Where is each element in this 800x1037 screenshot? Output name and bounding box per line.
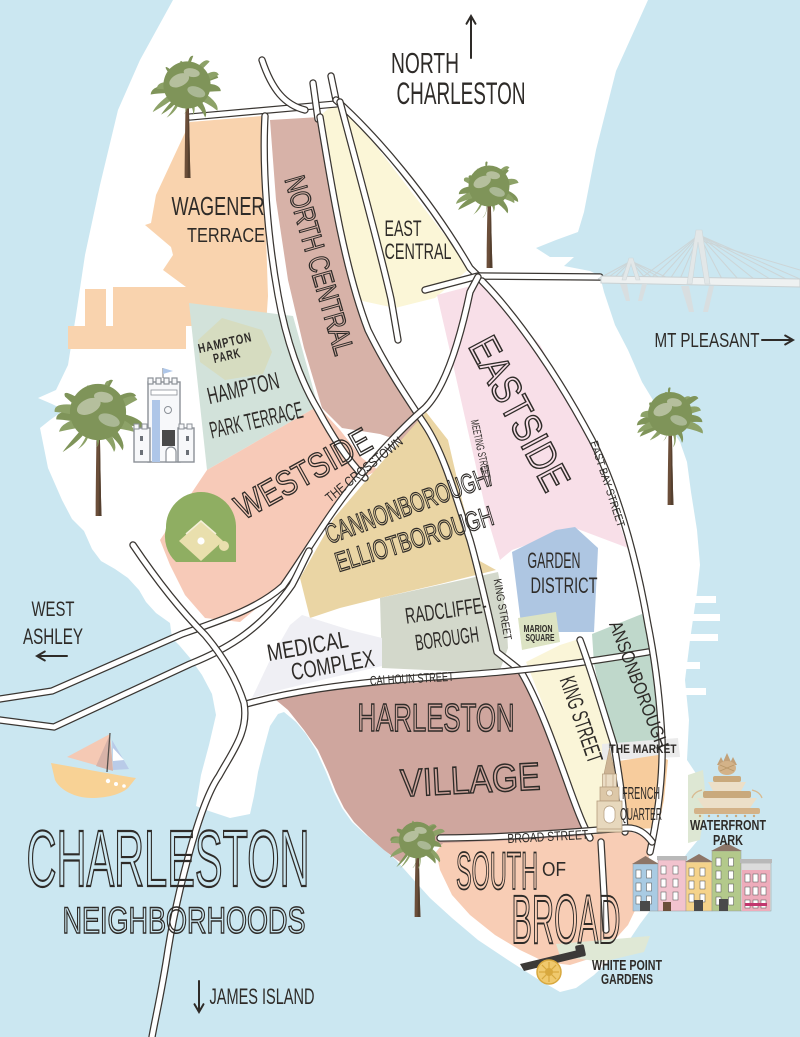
svg-text:WAGENER: WAGENER bbox=[172, 192, 265, 222]
svg-text:JAMES ISLAND: JAMES ISLAND bbox=[210, 985, 315, 1009]
svg-text:PARK: PARK bbox=[713, 832, 743, 849]
svg-text:ASHLEY: ASHLEY bbox=[23, 625, 83, 649]
svg-text:QUARTER: QUARTER bbox=[620, 806, 662, 825]
svg-text:EAST: EAST bbox=[385, 217, 422, 241]
svg-text:GARDEN: GARDEN bbox=[528, 549, 581, 573]
svg-text:MT PLEASANT: MT PLEASANT bbox=[655, 329, 760, 351]
svg-text:VILLAGE: VILLAGE bbox=[399, 755, 541, 805]
svg-text:OF: OF bbox=[542, 858, 566, 880]
svg-text:DISTRICT: DISTRICT bbox=[531, 574, 598, 598]
svg-text:WEST: WEST bbox=[32, 598, 75, 621]
svg-text:CENTRAL: CENTRAL bbox=[385, 240, 452, 264]
svg-text:FRENCH: FRENCH bbox=[622, 785, 660, 804]
svg-text:SQUARE: SQUARE bbox=[526, 632, 555, 643]
svg-text:HARLESTON: HARLESTON bbox=[358, 697, 515, 740]
svg-text:BROAD: BROAD bbox=[512, 882, 621, 958]
svg-text:CHARLESTON: CHARLESTON bbox=[27, 814, 310, 903]
svg-text:NEIGHBORHOODS: NEIGHBORHOODS bbox=[62, 900, 305, 942]
svg-text:GARDENS: GARDENS bbox=[601, 971, 653, 988]
svg-text:THE MARKET: THE MARKET bbox=[610, 743, 677, 756]
svg-text:TERRACE: TERRACE bbox=[187, 224, 265, 246]
svg-text:CHARLESTON: CHARLESTON bbox=[397, 75, 526, 110]
